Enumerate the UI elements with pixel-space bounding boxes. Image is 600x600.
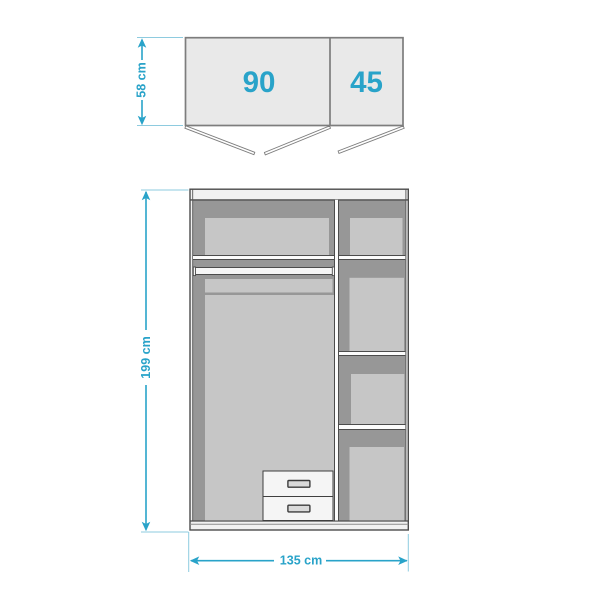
svg-text:135 cm: 135 cm — [280, 554, 322, 568]
svg-text:199 cm: 199 cm — [139, 336, 153, 378]
svg-text:90: 90 — [243, 66, 276, 99]
svg-text:58 cm: 58 cm — [135, 62, 149, 97]
svg-text:45: 45 — [350, 66, 383, 99]
